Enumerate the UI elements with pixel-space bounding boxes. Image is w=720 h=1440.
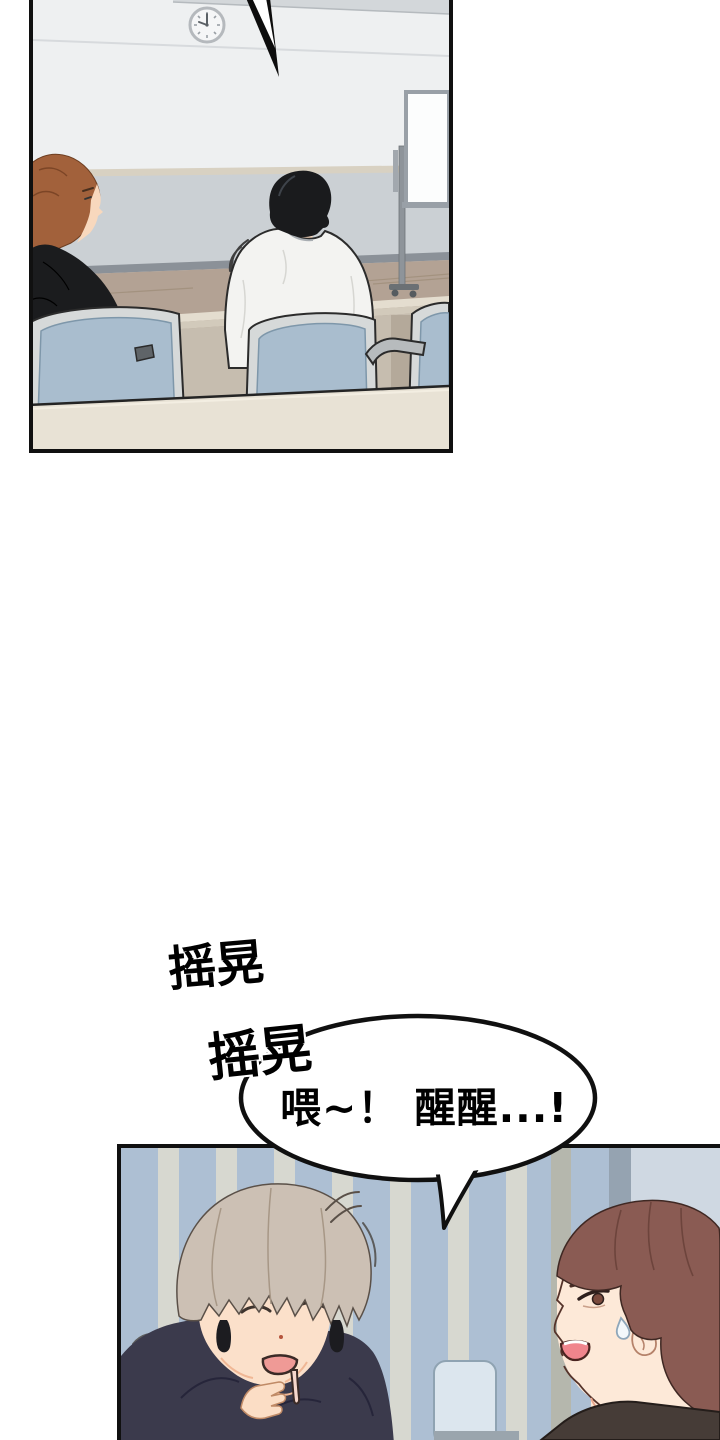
speech-bubble-text: 喂~！ 醒醒...! <box>264 1074 584 1134</box>
classroom-scene <box>33 0 449 449</box>
earring-left <box>216 1320 231 1352</box>
comic-page: 摇晃 摇晃 <box>0 0 720 1440</box>
friend-eye <box>593 1294 604 1305</box>
clock-icon <box>190 8 224 42</box>
earring-right <box>329 1320 344 1352</box>
sfx-shake-2: 摇晃 <box>206 1023 315 1086</box>
sfx-shake-1: 摇晃 <box>166 938 266 994</box>
whiteboard-foot <box>389 284 419 290</box>
student-center-hair <box>269 171 331 237</box>
panel-classroom <box>29 0 453 453</box>
